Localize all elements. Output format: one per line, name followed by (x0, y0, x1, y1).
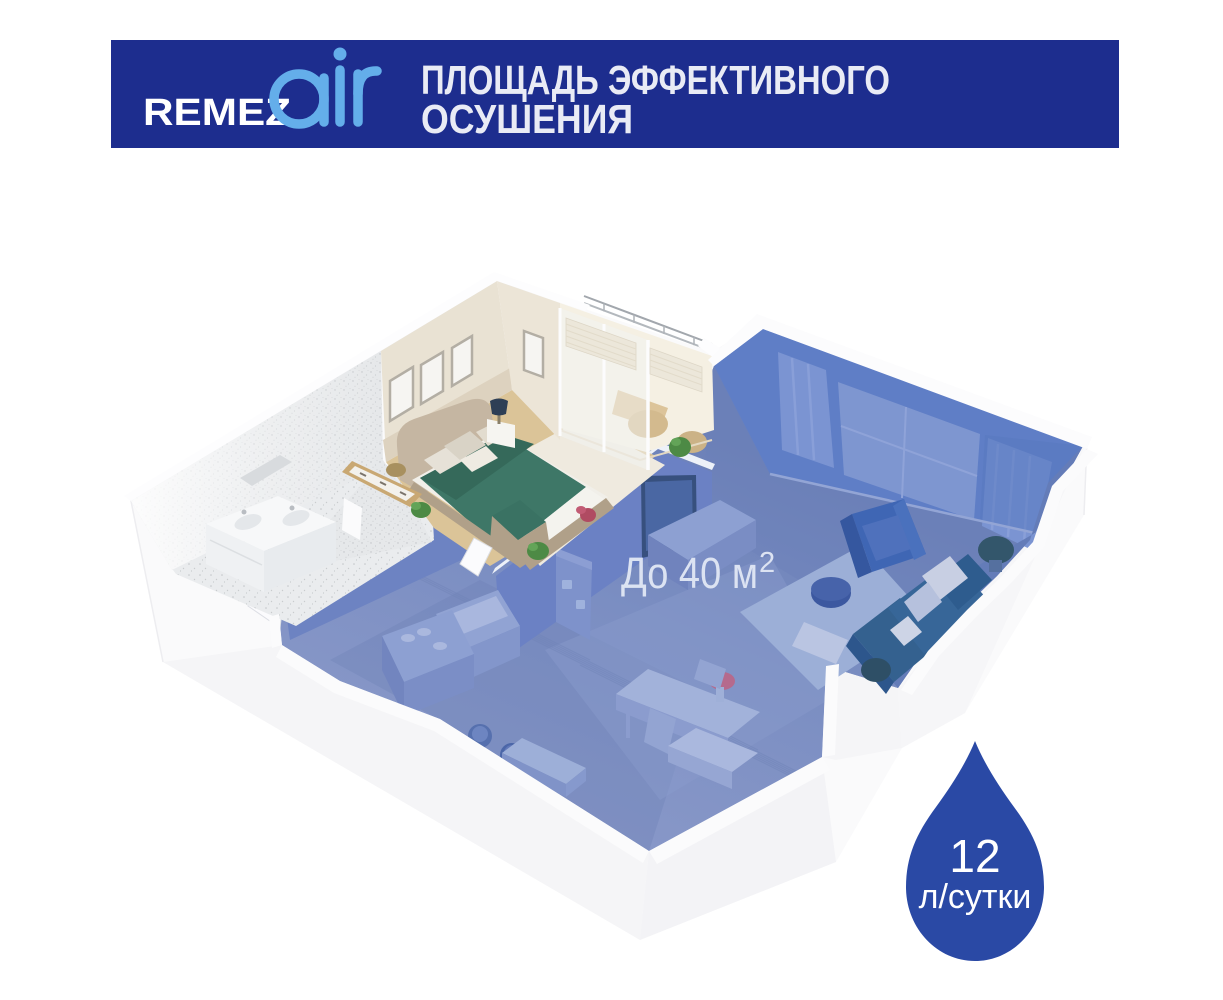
svg-text:ОСУШЕНИЯ: ОСУШЕНИЯ (421, 96, 633, 142)
svg-text:12: 12 (949, 830, 1000, 882)
svg-text:До 40 м: До 40 м (621, 549, 758, 598)
svg-text:л/сутки: л/сутки (919, 878, 1032, 916)
svg-text:2: 2 (759, 547, 775, 579)
svg-text:REMEZ: REMEZ (143, 92, 291, 134)
